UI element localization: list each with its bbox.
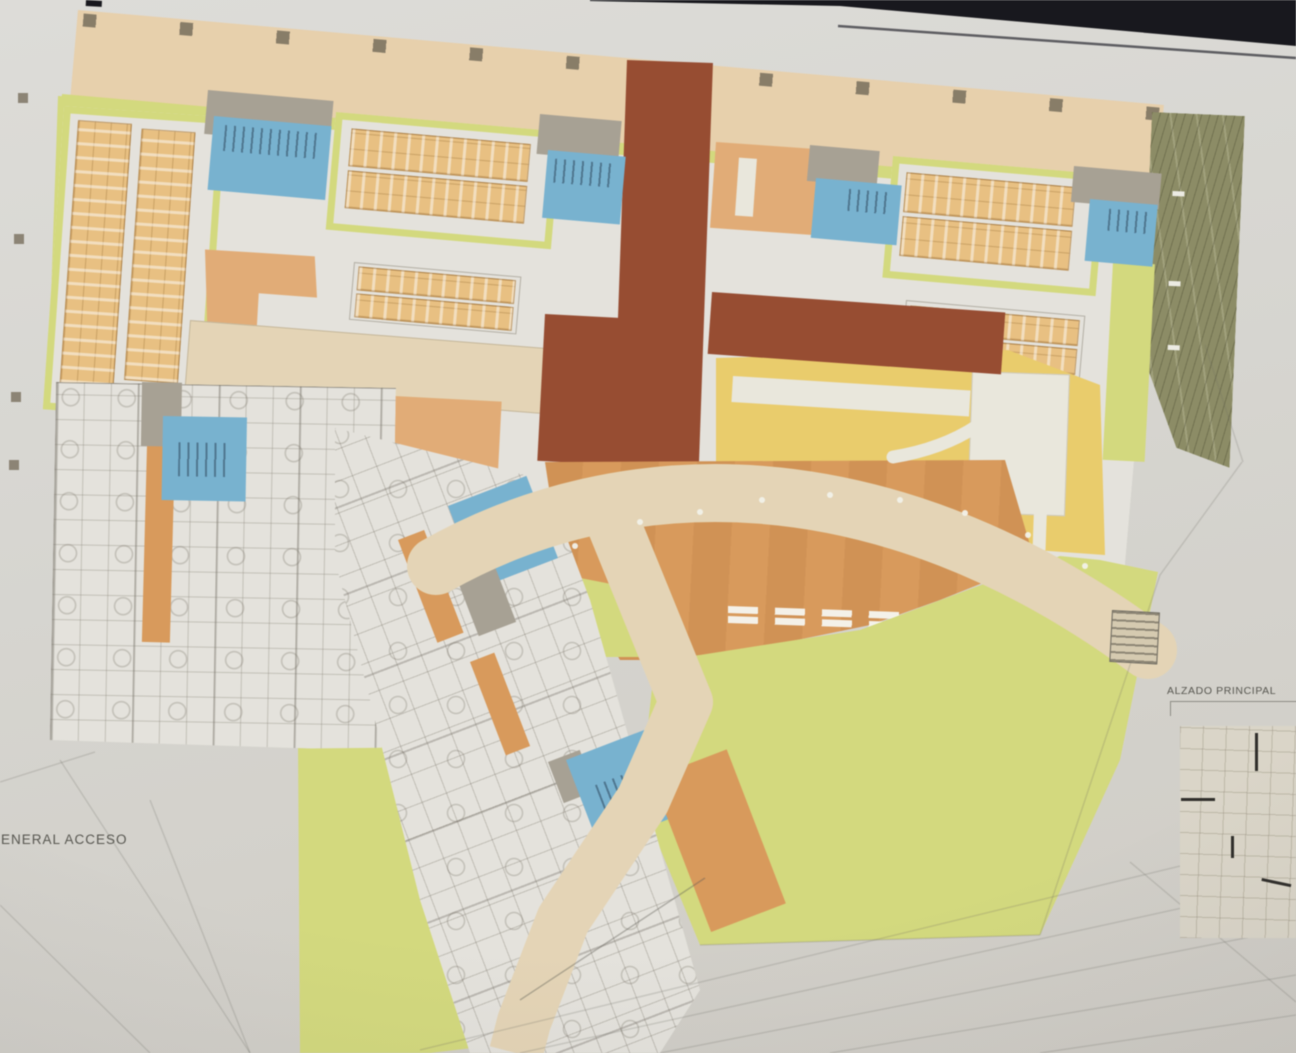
plaza-curved-path: [893, 426, 977, 457]
plan-artwork-layer: ALZADO PRINCIPAL ENERAL ACCESO: [0, 0, 1296, 1053]
inset-wall-mark: [1231, 836, 1234, 858]
paths-and-sitelines-layer: [0, 0, 1296, 1053]
top-frame-notch: [86, 0, 102, 7]
inset-wall-mark: [1181, 798, 1215, 801]
inset-wall-mark: [1261, 878, 1291, 887]
inset-wall-mark: [1255, 733, 1258, 771]
arc-end-stair-block: [1109, 610, 1160, 664]
elevation-title: ALZADO PRINCIPAL: [1167, 685, 1276, 697]
diagonal-walkway: [516, 520, 686, 1053]
arc-walkway: [436, 493, 1148, 650]
floor-plan-photo: ALZADO PRINCIPAL ENERAL ACCESO: [0, 0, 1296, 1053]
site-context-lines: [0, 345, 1296, 1053]
access-label: ENERAL ACCESO: [1, 832, 128, 847]
elevation-title-box: [1170, 701, 1296, 716]
elevation-inset-plan: [1180, 726, 1296, 938]
